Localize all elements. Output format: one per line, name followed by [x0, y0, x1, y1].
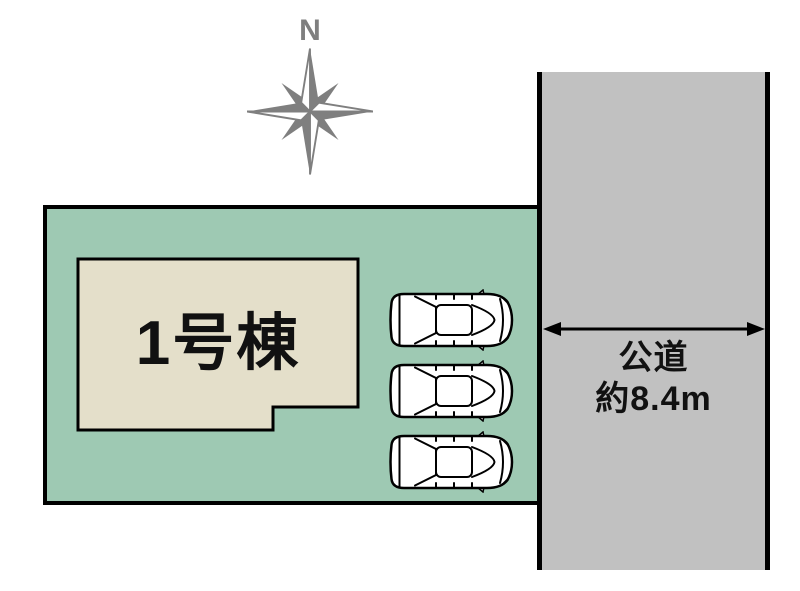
car-icon — [386, 360, 516, 422]
car-icon — [386, 431, 516, 493]
site-plan-canvas: 公道 約8.4m 1号棟 — [0, 0, 800, 591]
road-label: 公道 約8.4m — [537, 338, 770, 420]
compass-rose-icon — [247, 48, 373, 175]
road-width-label: 約8.4m — [537, 379, 770, 420]
car-icon — [386, 289, 516, 351]
building-label: 1号棟 — [75, 308, 361, 380]
road-width-arrow-icon — [543, 320, 765, 338]
road-name-label: 公道 — [537, 338, 770, 379]
compass-north-label: N — [247, 14, 373, 48]
